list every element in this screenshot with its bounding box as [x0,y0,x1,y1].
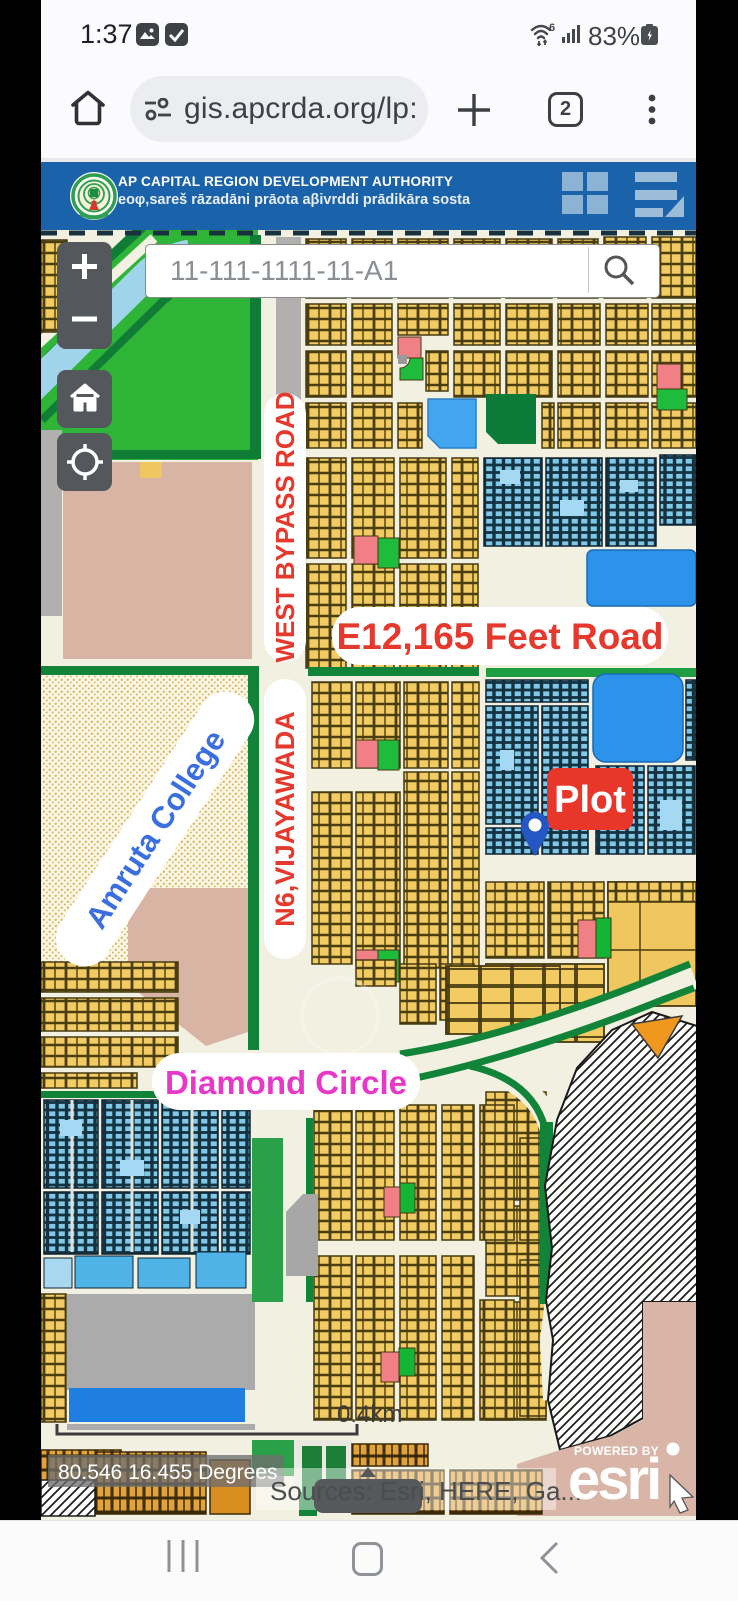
svg-text:Plot: Plot [554,779,626,821]
svg-text:E12,165 Feet Road: E12,165 Feet Road [337,616,664,657]
svg-text:Diamond Circle: Diamond Circle [165,1064,407,1101]
svg-text:6: 6 [549,22,555,34]
svg-text:Sources: Esri, HERE, Ga...: Sources: Esri, HERE, Ga... [270,1476,582,1506]
svg-text:esri: esri [568,1447,659,1512]
svg-text:0.4km: 0.4km [337,1401,402,1428]
svg-text:WEST BYPASS ROAD: WEST BYPASS ROAD [270,391,300,662]
svg-text:N6,VIJAYAWADA: N6,VIJAYAWADA [270,711,300,927]
svg-text:80.546 16.455 Degrees: 80.546 16.455 Degrees [58,1461,278,1484]
